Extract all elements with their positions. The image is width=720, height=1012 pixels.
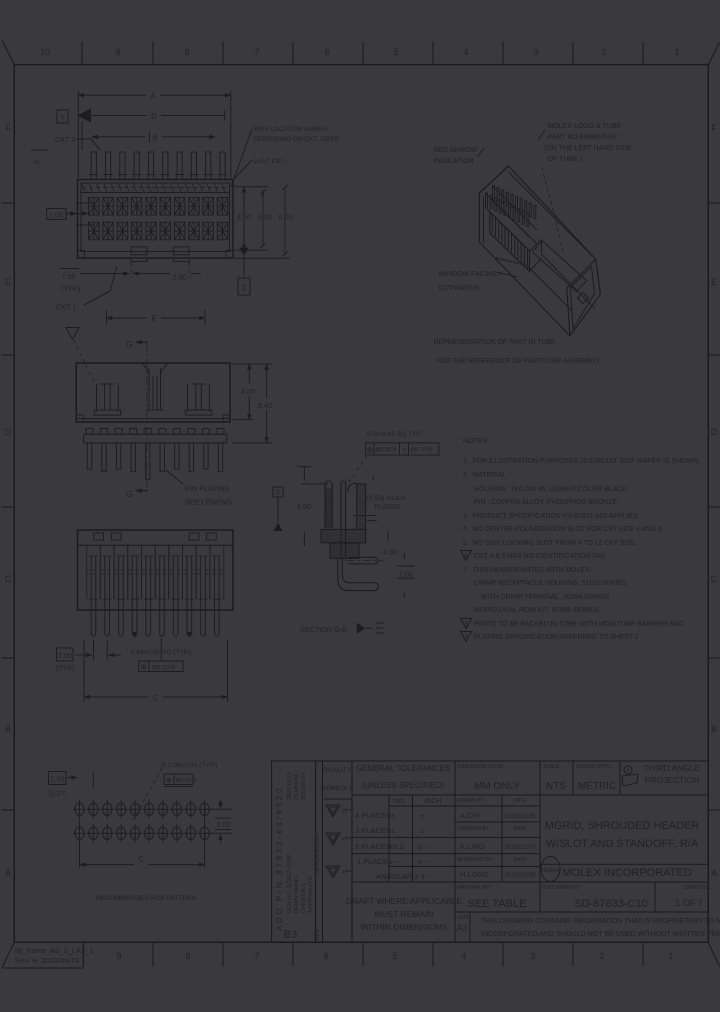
svg-text:DRAFT WHERE APPLICABLE: DRAFT WHERE APPLICABLE <box>346 896 462 906</box>
svg-text:2003/11/07: 2003/11/07 <box>505 844 536 851</box>
svg-text:J: J <box>261 192 265 199</box>
svg-text:LAST CKT.: LAST CKT. <box>254 158 287 165</box>
svg-text:MGRID, SHROUDED HEADER: MGRID, SHROUDED HEADER <box>545 820 700 832</box>
svg-text:4 PLACES: 4 PLACES <box>355 811 391 820</box>
svg-text:8: 8 <box>185 951 190 961</box>
svg-text:PLATING SPECIFICATION REFERRED: PLATING SPECIFICATION REFERRED TO SHEET … <box>474 634 639 641</box>
svg-text:molex: molex <box>542 867 560 874</box>
svg-text:10: 10 <box>40 47 50 57</box>
svg-text:9: 9 <box>115 47 120 57</box>
svg-text:DRWN:SKANG: DRWN:SKANG <box>294 875 300 913</box>
svg-text:D: D <box>151 112 157 121</box>
svg-text:SHEET NO.: SHEET NO. <box>684 885 711 891</box>
svg-text:(1.27): (1.27) <box>49 791 67 798</box>
svg-text:A: A <box>5 868 11 878</box>
svg-text:(TYP): (TYP) <box>56 666 74 673</box>
svg-text:Rev. H 2003/06/18: Rev. H 2003/06/18 <box>15 956 79 965</box>
svg-text:(TYP.): (TYP.) <box>61 286 80 293</box>
svg-text:A: A <box>711 868 717 878</box>
svg-text:MM ONLY: MM ONLY <box>474 781 520 792</box>
svg-text:PLATED: PLATED <box>374 504 400 511</box>
svg-text:E: E <box>711 277 717 287</box>
svg-text:H: H <box>34 158 39 167</box>
svg-text:8: 8 <box>464 622 467 628</box>
svg-text:mm: mm <box>393 798 405 805</box>
svg-text:PIN : COPPER ALLOY, PHOSPHOR B: PIN : COPPER ALLOY, PHOSPHOR BRONZE. <box>474 499 619 506</box>
svg-text:3.60: 3.60 <box>297 502 311 511</box>
svg-text:NOTES:: NOTES: <box>463 438 489 445</box>
svg-text:D: D <box>711 427 718 437</box>
svg-text:GENERAL TOLERANCES: GENERAL TOLERANCES <box>356 764 450 773</box>
svg-text:2.00: 2.00 <box>217 820 231 829</box>
svg-text:DRAWN BY: DRAWN BY <box>457 798 484 804</box>
svg-text:F: F <box>711 123 717 133</box>
svg-text:2010/01/05: 2010/01/05 <box>505 872 537 879</box>
svg-text:5. NO SIDE LOCKING SLOT FROM: 5. NO SIDE LOCKING SLOT FROM 4 TO 12 CKT… <box>463 540 637 547</box>
svg-text:(ON THE LEFT HAND SIDE: (ON THE LEFT HAND SIDE <box>544 145 632 152</box>
svg-text:RED ARROW: RED ARROW <box>434 147 478 154</box>
svg-text:4.20: 4.20 <box>241 387 255 396</box>
svg-text:X: X <box>403 448 407 454</box>
svg-text:THIS DRAWING CONTAINS INFORMAT: THIS DRAWING CONTAINS INFORMATION THAT I… <box>481 917 720 925</box>
svg-text:1 OF 7: 1 OF 7 <box>675 898 703 908</box>
svg-text:INDICATION: INDICATION <box>434 158 474 165</box>
svg-text:WINDOW FACING –: WINDOW FACING – <box>438 271 503 278</box>
svg-text:(UNLESS SPECIFIED): (UNLESS SPECIFIED) <box>362 781 444 790</box>
svg-text:7: 7 <box>254 951 259 961</box>
svg-text:4. NO CENTRE POLARIZATION SLO: 4. NO CENTRE POLARIZATION SLOT FOR CKT S… <box>463 526 664 533</box>
svg-text:DIMENSION STYLE: DIMENSION STYLE <box>458 764 504 770</box>
svg-text:C: C <box>138 855 144 864</box>
svg-text:PIN PLATING :: PIN PLATING : <box>185 484 234 493</box>
svg-text:Ø0.70Ⓜ: Ø0.70Ⓜ <box>411 446 433 454</box>
svg-text:DESIGN UNITS: DESIGN UNITS <box>576 764 612 770</box>
svg-text:2.00: 2.00 <box>58 651 72 660</box>
svg-text:CHKR:DA.S: CHKR:DA.S <box>301 883 307 913</box>
svg-text:Ø 0.95±0.05 (TYP.): Ø 0.95±0.05 (TYP.) <box>161 762 217 769</box>
svg-text:C: C <box>153 694 159 703</box>
svg-text:7. THIS HEADER MATES WITH MOL: 7. THIS HEADER MATES WITH MOLEX: <box>463 567 591 574</box>
svg-text:APPR:WILLYS: APPR:WILLYS <box>308 876 314 913</box>
svg-text:MUST REMAIN: MUST REMAIN <box>374 909 433 919</box>
svg-text:±---: ±--- <box>389 857 401 866</box>
svg-text:2010/01/05: 2010/01/05 <box>301 772 307 800</box>
svg-text:THIRD ANGLE: THIRD ANGLE <box>644 763 701 773</box>
svg-text:DESCRIPTION: DESCRIPTION <box>315 834 321 875</box>
svg-text:B3: B3 <box>284 929 297 941</box>
svg-text:2.60: 2.60 <box>173 273 187 282</box>
svg-text:1: 1 <box>261 240 265 247</box>
svg-text:B: B <box>5 724 11 734</box>
svg-text:APPROVED BY: APPROVED BY <box>457 857 494 863</box>
svg-text:REV: REV <box>315 929 321 941</box>
svg-text:2005/12/12: 2005/12/12 <box>287 772 293 800</box>
svg-text:FOR THE REFERENCE OF PART/TUBE: FOR THE REFERENCE OF PART/TUBE ASSEMBLY <box>436 358 601 365</box>
svg-text:MOLEX INCORPORATED: MOLEX INCORPORATED <box>562 867 691 879</box>
svg-text:DATE: DATE <box>514 857 528 863</box>
svg-text:3. PRODUCT SPECIFICATION PS-8: 3. PRODUCT SPECIFICATION PS-87831-002 AP… <box>463 513 639 520</box>
svg-text:6.20: 6.20 <box>279 213 293 222</box>
svg-text:4: 4 <box>461 951 466 961</box>
svg-text:⊕: ⊕ <box>140 663 147 672</box>
svg-text:H.LONG: H.LONG <box>460 870 489 879</box>
svg-text:DATE: DATE <box>514 826 528 832</box>
svg-text:SCALE: SCALE <box>543 764 560 770</box>
svg-text:2: 2 <box>599 951 604 961</box>
svg-text:OUTWARDS: OUTWARDS <box>438 285 479 292</box>
svg-text:7.00: 7.00 <box>62 272 76 281</box>
svg-text:A3: A3 <box>456 923 467 933</box>
svg-text:1: 1 <box>668 951 673 961</box>
svg-text:CHECKED BY: CHECKED BY <box>457 826 490 832</box>
svg-text:6: 6 <box>324 47 329 57</box>
svg-text:5.40: 5.40 <box>258 401 272 410</box>
svg-text:DEPENDING ON CKT. SIZES: DEPENDING ON CKT. SIZES <box>254 136 339 143</box>
svg-text:WITHIN DIMENSIONS: WITHIN DIMENSIONS <box>361 922 448 932</box>
svg-text:MGRID DUAL ROW IDT, 87568 SERI: MGRID DUAL ROW IDT, 87568 SERIES. <box>474 607 600 614</box>
svg-text:CKT 1: CKT 1 <box>56 303 77 312</box>
svg-text:Z: Z <box>276 490 281 497</box>
svg-text:RIBS LOCATION VARIES: RIBS LOCATION VARIES <box>254 126 328 133</box>
svg-text:6: 6 <box>323 951 328 961</box>
svg-text:±: ± <box>420 811 424 820</box>
svg-text:9: 9 <box>464 635 467 641</box>
svg-text:SIZE: SIZE <box>457 915 470 921</box>
svg-text:0.50-0.65 SQ.TYP: 0.50-0.65 SQ.TYP <box>367 431 421 438</box>
svg-text:8: 8 <box>184 47 189 57</box>
svg-text:±---: ±--- <box>418 842 430 851</box>
svg-text:MOLEX LOGO & TUBE: MOLEX LOGO & TUBE <box>548 123 622 130</box>
svg-text:SYMBOLS: SYMBOLS <box>321 785 354 792</box>
svg-text:Ø0.20Ⓜ: Ø0.20Ⓜ <box>152 663 176 671</box>
svg-text:INCORPORATED AND SHOULD NOT BE: INCORPORATED AND SHOULD NOT BE USED WITH… <box>481 930 720 938</box>
svg-text:7: 7 <box>254 47 259 57</box>
svg-text:SD-87833-C10: SD-87833-C10 <box>574 898 647 910</box>
svg-text:A.CHI: A.CHI <box>460 811 480 820</box>
svg-text:MATERIAL NO.: MATERIAL NO. <box>457 885 492 891</box>
svg-text:⊕: ⊕ <box>366 446 373 455</box>
svg-text:CKT 4 & 6 HAS NO IDENTIFICATI: CKT 4 & 6 HAS NO IDENTIFICATION TAG <box>474 553 606 560</box>
svg-text:WITH CRIMP TERMINAL, 50394 SER: WITH CRIMP TERMINAL, 50394 SERIES <box>481 594 610 601</box>
svg-text:3: 3 <box>533 47 538 57</box>
svg-text:NTS: NTS <box>546 781 566 792</box>
svg-text:75 0/01/04: 75 0/01/04 <box>294 774 300 800</box>
svg-text:PARTS TO BE PACKED IN TUBE WIT: PARTS TO BE PACKED IN TUBE WITH MOISTURE… <box>474 621 684 628</box>
svg-text:4: 4 <box>463 47 468 57</box>
svg-text:5: 5 <box>392 951 397 961</box>
svg-text:ADD P/N 87833-64/6520: ADD P/N 87833-64/6520 <box>275 786 284 931</box>
svg-text:E: E <box>151 315 156 324</box>
svg-text:A: A <box>150 92 156 101</box>
svg-text:±0.2: ±0.2 <box>389 842 404 851</box>
svg-text:E: E <box>5 277 11 287</box>
svg-text:G: G <box>126 339 133 349</box>
svg-text:B: B <box>152 133 157 142</box>
svg-text:±: ± <box>391 826 395 835</box>
svg-text:RECOMMENDED PCB PATTERN: RECOMMENDED PCB PATTERN <box>96 895 196 902</box>
svg-text:5.00: 5.00 <box>258 213 272 222</box>
svg-text:1 PLACE: 1 PLACE <box>357 857 388 866</box>
svg-text:4.60: 4.60 <box>237 213 251 222</box>
svg-text:ECN NO. SC2011-0708: ECN NO. SC2011-0708 <box>287 855 293 913</box>
svg-text:SEE TABLE: SEE TABLE <box>468 898 527 910</box>
svg-text:B: B <box>711 724 717 734</box>
svg-text:PART NO.89990-0007: PART NO.89990-0007 <box>548 134 618 141</box>
svg-text:K.LING: K.LING <box>460 842 485 851</box>
svg-text:2003/10/29: 2003/10/29 <box>505 813 537 820</box>
svg-text:3 PLACES: 3 PLACES <box>355 826 391 835</box>
svg-text:±---: ±--- <box>418 857 430 866</box>
svg-text:SECTION G-G: SECTION G-G <box>300 625 348 634</box>
svg-text:HOUSING : NYLON 46, UL94V-0 CO: HOUSING : NYLON 46, UL94V-0 COLOR BLACK. <box>474 486 629 493</box>
svg-text:9: 9 <box>116 951 121 961</box>
svg-text:2.02: 2.02 <box>51 775 65 784</box>
svg-text:2.00: 2.00 <box>49 210 63 219</box>
svg-text:C: C <box>711 574 718 584</box>
svg-text:2. MATERIAL :: 2. MATERIAL : <box>463 472 510 479</box>
svg-text:OF TUBE.): OF TUBE.) <box>548 156 582 163</box>
svg-text:6: 6 <box>464 554 467 560</box>
svg-text:(2.50) GOLD: (2.50) GOLD <box>367 495 406 502</box>
svg-text:D: D <box>5 427 12 437</box>
svg-text:5: 5 <box>393 47 398 57</box>
svg-text:DATE: DATE <box>514 798 528 804</box>
svg-text:F: F <box>5 123 11 133</box>
svg-text:SEE LEGEND: SEE LEGEND <box>185 498 232 507</box>
svg-text:Y: Y <box>60 113 66 122</box>
svg-text:±: ± <box>420 826 424 835</box>
svg-text:W/SLOT AND STANDOFF, R/A: W/SLOT AND STANDOFF, R/A <box>546 838 699 850</box>
svg-text:C: C <box>5 574 12 584</box>
svg-text:ANGULAR ± 3 °: ANGULAR ± 3 ° <box>376 872 430 881</box>
svg-text:2.00: 2.00 <box>399 570 413 579</box>
svg-text:4.30: 4.30 <box>383 548 397 557</box>
svg-text:CRIMP RECEPTACLE HOUSING, 5111: CRIMP RECEPTACLE HOUSING, 51110 SERIES <box>474 580 627 587</box>
svg-text:⊕: ⊕ <box>166 775 172 784</box>
svg-text:lib_frame_A3_2_LA3_1: lib_frame_A3_2_LA3_1 <box>15 946 93 955</box>
svg-text:3: 3 <box>530 951 535 961</box>
svg-text:QUALITY: QUALITY <box>322 767 352 774</box>
svg-text:METRIC: METRIC <box>578 781 616 792</box>
svg-text:±: ± <box>391 811 395 820</box>
svg-text:Z: Z <box>242 284 247 293</box>
svg-text:CKT 2: CKT 2 <box>55 135 75 144</box>
svg-text:1. FOR ILLUSTRATION PURPOSES: 1. FOR ILLUSTRATION PURPOSES 20 CIRCUIT … <box>463 458 700 465</box>
svg-text:Ø0.20Ⓜ: Ø0.20Ⓜ <box>176 776 198 784</box>
svg-text:G: G <box>126 489 133 499</box>
svg-text:Ø0.30Ⓜ: Ø0.30Ⓜ <box>376 446 398 454</box>
svg-text:2: 2 <box>601 47 606 57</box>
svg-text:2 PLACES: 2 PLACES <box>355 842 391 851</box>
svg-text:DOCUMENT NO: DOCUMENT NO <box>542 885 580 891</box>
svg-text:PROJECTION: PROJECTION <box>645 775 700 785</box>
svg-text:1: 1 <box>674 47 679 57</box>
svg-text:INCH: INCH <box>424 798 441 805</box>
svg-text:REPRESENTATION OF PART IN TUBE: REPRESENTATION OF PART IN TUBE. <box>434 339 558 346</box>
